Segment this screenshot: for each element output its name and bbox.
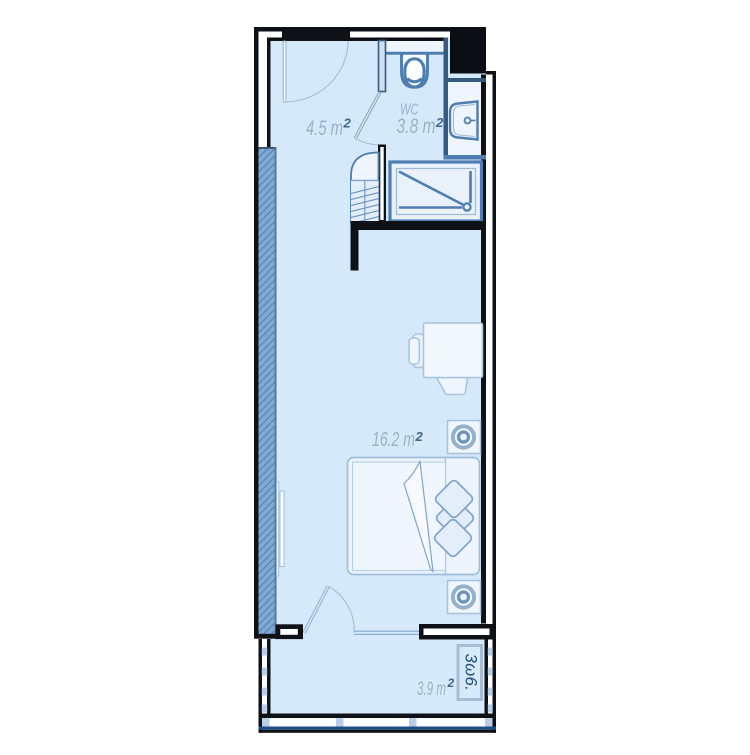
svg-text:2: 2 (435, 115, 444, 130)
svg-text:3ω6.: 3ω6. (462, 654, 480, 692)
svg-text:2: 2 (343, 116, 352, 131)
svg-text:2: 2 (447, 676, 455, 690)
svg-text:2: 2 (415, 429, 424, 444)
svg-text:3.9 m: 3.9 m (417, 679, 446, 700)
svg-text:16.2 m: 16.2 m (372, 429, 415, 451)
svg-text:4.5 m: 4.5 m (306, 117, 343, 140)
svg-text:3.8 m: 3.8 m (397, 115, 436, 138)
